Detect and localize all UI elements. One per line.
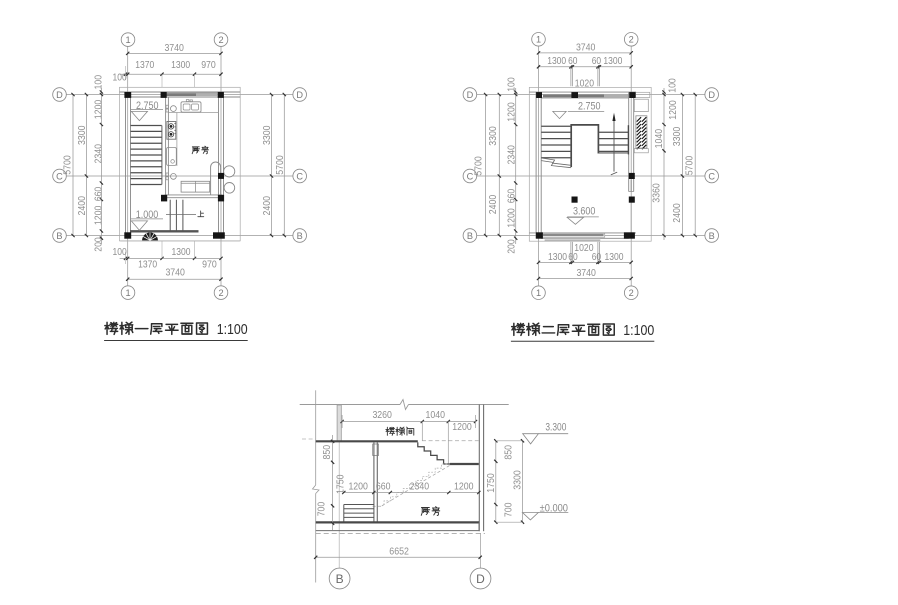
svg-text:3360: 3360 xyxy=(652,183,663,203)
svg-text:1200: 1200 xyxy=(348,482,368,493)
svg-text:B: B xyxy=(297,231,303,241)
svg-text:100: 100 xyxy=(93,75,104,90)
svg-text:2.750: 2.750 xyxy=(578,101,601,113)
svg-text:970: 970 xyxy=(202,259,217,270)
svg-text:3.600: 3.600 xyxy=(573,206,596,218)
svg-text:2340: 2340 xyxy=(410,482,430,493)
svg-text:B: B xyxy=(336,572,344,586)
svg-text:D: D xyxy=(476,572,485,586)
svg-text:1200: 1200 xyxy=(93,99,104,119)
svg-text:2: 2 xyxy=(629,288,634,298)
svg-text:3300: 3300 xyxy=(488,126,499,146)
svg-text:2400: 2400 xyxy=(488,194,499,214)
svg-text:1200: 1200 xyxy=(507,102,518,122)
svg-text:60: 60 xyxy=(568,252,578,263)
svg-text:1200: 1200 xyxy=(668,100,679,120)
svg-text:5700: 5700 xyxy=(62,155,73,175)
svg-text:100: 100 xyxy=(507,77,518,92)
svg-text:3300: 3300 xyxy=(512,470,523,490)
svg-text:700: 700 xyxy=(503,502,514,517)
svg-text:1370: 1370 xyxy=(138,259,157,270)
svg-text:1300: 1300 xyxy=(547,56,566,67)
svg-text:1200: 1200 xyxy=(93,205,104,225)
svg-text:1300: 1300 xyxy=(605,252,624,263)
svg-text:200: 200 xyxy=(93,237,104,252)
svg-text:1040: 1040 xyxy=(426,410,446,421)
svg-text:1: 1 xyxy=(536,35,541,45)
svg-text:970: 970 xyxy=(201,60,216,71)
svg-text:5700: 5700 xyxy=(275,155,286,175)
svg-text:1370: 1370 xyxy=(135,60,154,71)
svg-text:660: 660 xyxy=(507,188,518,203)
svg-text:100: 100 xyxy=(667,78,678,93)
svg-text:2: 2 xyxy=(218,35,223,45)
svg-text:60: 60 xyxy=(592,56,602,67)
svg-text:D: D xyxy=(296,90,303,100)
svg-text:D: D xyxy=(708,90,715,100)
svg-text:3300: 3300 xyxy=(77,125,88,145)
svg-text:1300: 1300 xyxy=(172,247,191,258)
svg-text:660: 660 xyxy=(93,186,104,201)
svg-text:C: C xyxy=(296,171,303,181)
svg-text:6652: 6652 xyxy=(389,547,409,558)
svg-text:B: B xyxy=(56,231,62,241)
svg-text:1: 1 xyxy=(536,288,541,298)
svg-text:100: 100 xyxy=(113,72,127,83)
svg-text:60: 60 xyxy=(568,56,578,67)
svg-text:1750: 1750 xyxy=(486,473,497,493)
svg-text:850: 850 xyxy=(503,445,514,460)
svg-text:2400: 2400 xyxy=(262,196,273,216)
svg-text:2: 2 xyxy=(629,35,634,45)
svg-text:1300: 1300 xyxy=(171,60,190,71)
svg-text:2340: 2340 xyxy=(507,145,518,165)
svg-text:1:100: 1:100 xyxy=(623,322,654,339)
svg-text:60: 60 xyxy=(592,252,602,263)
svg-text:850: 850 xyxy=(322,445,333,460)
svg-text:1300: 1300 xyxy=(548,252,567,263)
svg-text:5700: 5700 xyxy=(685,155,696,175)
svg-text:660: 660 xyxy=(376,482,391,493)
svg-text:1040: 1040 xyxy=(654,129,665,149)
svg-text:2: 2 xyxy=(218,288,223,298)
svg-text:3740: 3740 xyxy=(576,42,596,53)
svg-text:2340: 2340 xyxy=(93,144,104,164)
svg-text:D: D xyxy=(56,90,63,100)
svg-text:2400: 2400 xyxy=(77,196,88,216)
svg-text:C: C xyxy=(708,171,715,181)
svg-text:B: B xyxy=(467,231,473,241)
svg-text:1: 1 xyxy=(125,35,130,45)
svg-text:100: 100 xyxy=(113,247,127,258)
svg-text:5700: 5700 xyxy=(473,156,484,176)
svg-text:3260: 3260 xyxy=(372,410,392,421)
svg-text:3740: 3740 xyxy=(576,268,596,279)
svg-text:1020: 1020 xyxy=(575,78,594,89)
svg-text:3300: 3300 xyxy=(262,125,273,145)
svg-text:1:100: 1:100 xyxy=(217,321,248,338)
svg-text:B: B xyxy=(709,231,715,241)
svg-text:1300: 1300 xyxy=(603,56,622,67)
svg-text:1200: 1200 xyxy=(507,208,518,228)
svg-text:3740: 3740 xyxy=(164,43,184,54)
svg-text:D: D xyxy=(467,90,474,100)
svg-text:1: 1 xyxy=(125,288,130,298)
svg-text:3300: 3300 xyxy=(672,126,683,146)
svg-text:700: 700 xyxy=(317,501,328,516)
svg-text:3.300: 3.300 xyxy=(545,422,566,434)
svg-text:2400: 2400 xyxy=(672,203,683,223)
svg-text:1200: 1200 xyxy=(452,422,472,433)
svg-text:3740: 3740 xyxy=(165,268,185,279)
svg-text:1200: 1200 xyxy=(454,482,474,493)
svg-text:200: 200 xyxy=(507,239,518,254)
